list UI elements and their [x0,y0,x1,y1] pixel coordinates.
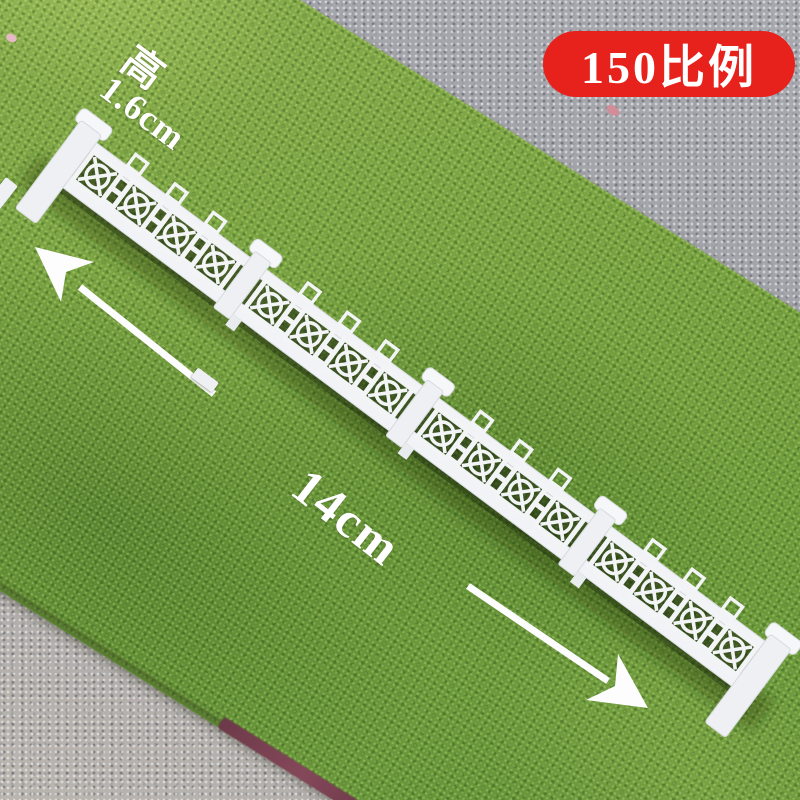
product-photo-scene: 高 1.6cm 14cm 150比例 [0,0,800,800]
model-fence [6,103,800,748]
scale-badge: 150比例 [543,31,795,97]
